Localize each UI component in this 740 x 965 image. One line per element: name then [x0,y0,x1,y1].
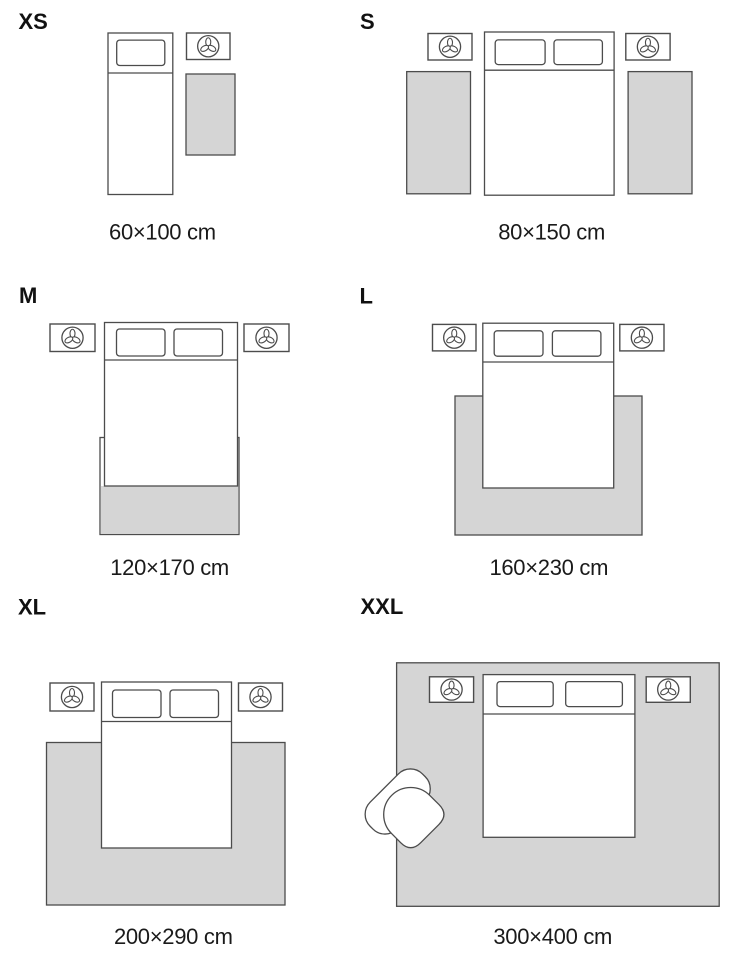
svg-text:XS: XS [19,9,48,34]
svg-text:S: S [360,9,375,34]
svg-text:XL: XL [18,594,46,619]
svg-text:80×150 cm: 80×150 cm [498,219,605,244]
svg-text:60×100 cm: 60×100 cm [109,219,216,244]
svg-text:L: L [360,284,373,309]
svg-text:M: M [19,283,37,308]
svg-text:120×170 cm: 120×170 cm [110,555,229,580]
svg-text:300×400 cm: 300×400 cm [493,924,612,949]
svg-text:200×290 cm: 200×290 cm [114,924,233,949]
svg-text:XXL: XXL [361,594,404,619]
svg-text:160×230 cm: 160×230 cm [489,555,608,580]
